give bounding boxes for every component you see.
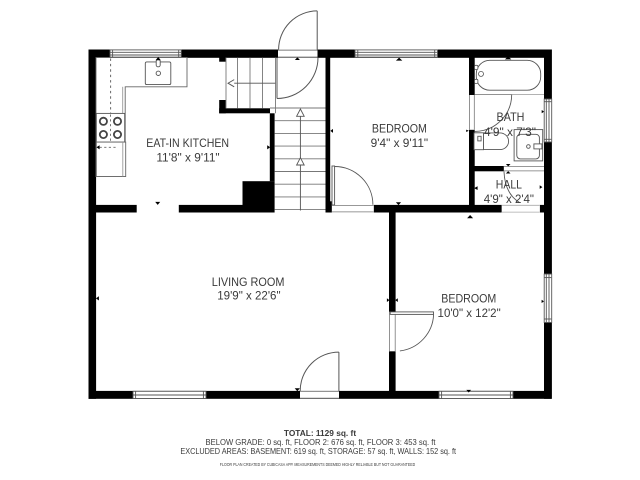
svg-text:BEDROOM: BEDROOM <box>441 291 496 305</box>
svg-text:4'9" x 7'3": 4'9" x 7'3" <box>484 125 536 139</box>
svg-text:EXCLUDED AREAS: BASEMENT: 619: EXCLUDED AREAS: BASEMENT: 619 sq. ft, ST… <box>180 447 456 456</box>
svg-text:10'0" x 12'2": 10'0" x 12'2" <box>438 306 501 320</box>
svg-text:9'4" x 9'11": 9'4" x 9'11" <box>371 136 429 150</box>
svg-text:BEDROOM: BEDROOM <box>372 121 427 135</box>
svg-text:EAT-IN KITCHEN: EAT-IN KITCHEN <box>146 136 229 150</box>
svg-text:BELOW GRADE: 0 sq. ft, FLOOR 2: BELOW GRADE: 0 sq. ft, FLOOR 2: 676 sq. … <box>206 438 437 447</box>
svg-text:4'9" x 2'4": 4'9" x 2'4" <box>484 192 534 206</box>
svg-text:19'9" x 22'6": 19'9" x 22'6" <box>217 288 280 302</box>
svg-text:11'8" x 9'11": 11'8" x 9'11" <box>156 151 219 165</box>
svg-text:LIVING ROOM: LIVING ROOM <box>212 275 285 289</box>
svg-text:HALL: HALL <box>496 178 522 192</box>
svg-text:TOTAL: 1129 sq. ft: TOTAL: 1129 sq. ft <box>284 429 356 438</box>
svg-text:BATH: BATH <box>497 110 525 124</box>
svg-text:FLOOR PLAN CREATED BY CUBICASA: FLOOR PLAN CREATED BY CUBICASA APP. MEAS… <box>220 462 416 468</box>
